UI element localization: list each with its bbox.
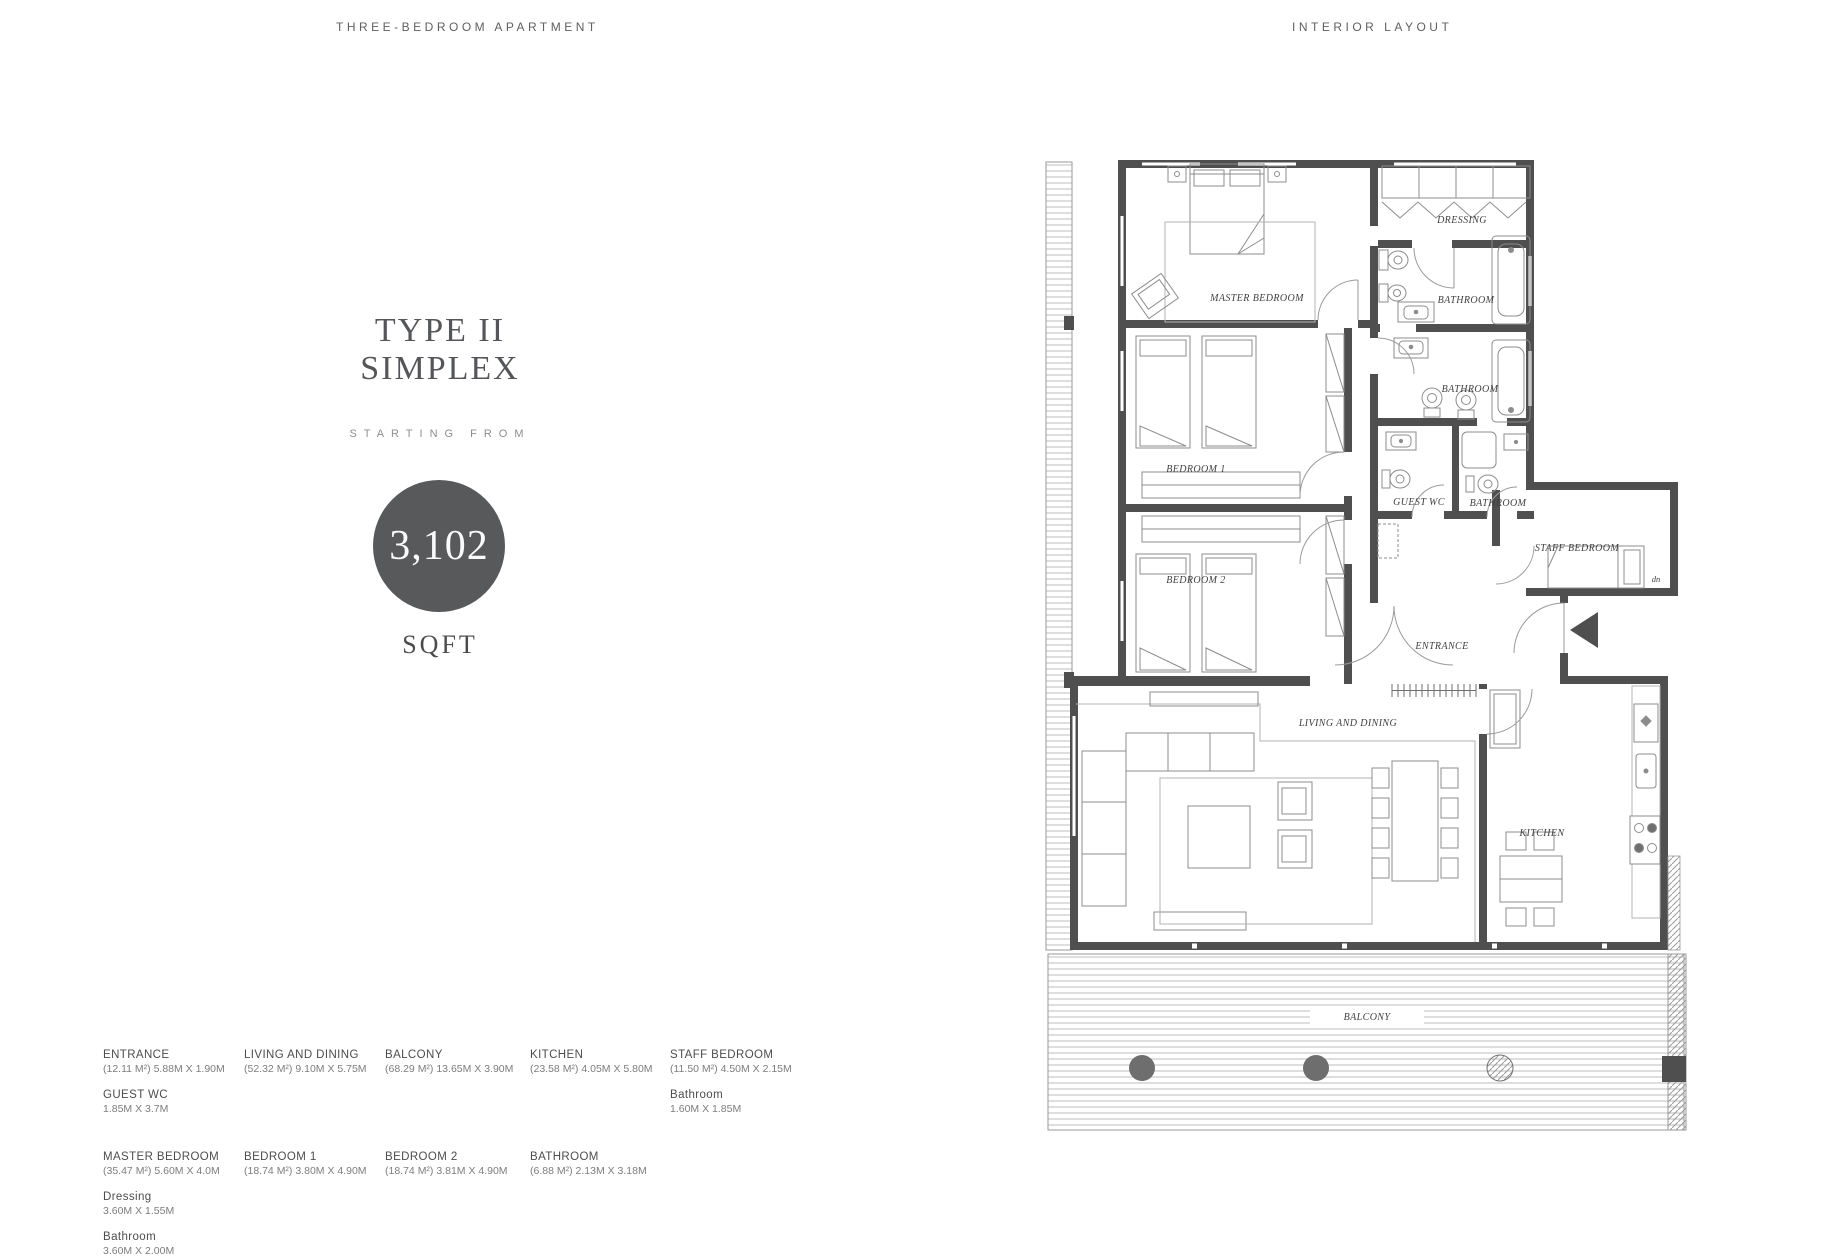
starting-from-label: STARTING FROM xyxy=(240,428,640,440)
unit-type-line2: SIMPLEX xyxy=(240,350,640,388)
planter xyxy=(1487,1055,1513,1081)
master-armchair xyxy=(1132,273,1179,318)
area-unit-label: SQFT xyxy=(240,630,640,660)
page-header-right: INTERIOR LAYOUT xyxy=(1292,20,1452,34)
corridor-cabinet xyxy=(1378,524,1398,558)
dim-entrance: ENTRANCE (12.11 M²) 5.88M X 1.90M GUEST … xyxy=(103,1048,253,1116)
guest-wc-fixtures xyxy=(1382,432,1416,488)
planter xyxy=(1303,1055,1329,1081)
bedroom2-furniture xyxy=(1136,516,1344,672)
unit-type-line1: TYPE II xyxy=(240,312,640,350)
living-armchairs xyxy=(1278,782,1312,868)
dim-size: (18.74 M²) 3.81M X 4.90M xyxy=(385,1164,535,1178)
dim-bathroom: BATHROOM (6.88 M²) 2.13M X 3.18M xyxy=(530,1150,680,1178)
area-value: 3,102 xyxy=(389,522,489,570)
dim-sub-size: 1.85M X 3.7M xyxy=(103,1102,253,1116)
dim-bedroom-2: BEDROOM 2 (18.74 M²) 3.81M X 4.90M xyxy=(385,1150,535,1178)
entry-arrow-icon xyxy=(1570,612,1598,648)
side-louver-strip xyxy=(1046,162,1074,950)
dim-kitchen: KITCHEN (23.58 M²) 4.05M X 5.80M xyxy=(530,1048,680,1076)
label-bedroom-1: BEDROOM 1 xyxy=(1166,464,1225,475)
planter xyxy=(1129,1055,1155,1081)
dim-size: (12.11 M²) 5.88M X 1.90M xyxy=(103,1062,253,1076)
label-balcony: BALCONY xyxy=(1344,1012,1392,1023)
dim-name: BATHROOM xyxy=(530,1150,680,1164)
living-sofa xyxy=(1082,692,1258,930)
master-bed xyxy=(1168,164,1286,254)
label-stairs-dn: dn xyxy=(1652,574,1661,584)
bathroom3-fixtures xyxy=(1462,432,1528,493)
dim-size: (6.88 M²) 2.13M X 3.18M xyxy=(530,1164,680,1178)
label-bedroom-2: BEDROOM 2 xyxy=(1166,575,1225,586)
dim-name: BEDROOM 1 xyxy=(244,1150,394,1164)
label-bathroom-3: BATHROOM xyxy=(1470,498,1527,509)
dim-size: (23.58 M²) 4.05M X 5.80M xyxy=(530,1062,680,1076)
entrance-cabinet xyxy=(1392,684,1476,697)
label-master-bedroom: MASTER BEDROOM xyxy=(1209,293,1304,304)
master-rug xyxy=(1165,222,1315,322)
living-rug xyxy=(1160,778,1372,924)
dim-name: MASTER BEDROOM xyxy=(103,1150,253,1164)
dim-bedroom-1: BEDROOM 1 (18.74 M²) 3.80M X 4.90M xyxy=(244,1150,394,1178)
area-badge: 3,102 xyxy=(373,480,505,612)
label-bathroom-2: BATHROOM xyxy=(1442,384,1499,395)
dim-sub-name: GUEST WC xyxy=(103,1088,253,1102)
dim-name: KITCHEN xyxy=(530,1048,680,1062)
label-kitchen: KITCHEN xyxy=(1518,828,1565,839)
dim-sub-size: 1.60M X 1.85M xyxy=(670,1102,820,1116)
dim-balcony: BALCONY (68.29 M²) 13.65M X 3.90M xyxy=(385,1048,535,1076)
label-entrance: ENTRANCE xyxy=(1414,641,1468,652)
dining-table xyxy=(1372,761,1458,881)
dim-staff-bedroom: STAFF BEDROOM (11.50 M²) 4.50M X 2.15M B… xyxy=(670,1048,820,1116)
bathroom2-fixtures xyxy=(1394,338,1530,422)
dim-size: (52.32 M²) 9.10M X 5.75M xyxy=(244,1062,394,1076)
dim-size: (35.47 M²) 5.60M X 4.0M xyxy=(103,1164,253,1178)
dim-size: (11.50 M²) 4.50M X 2.15M xyxy=(670,1062,820,1076)
label-staff-bedroom: STAFF BEDROOM xyxy=(1535,543,1619,554)
label-living-dining: LIVING AND DINING xyxy=(1298,718,1397,729)
dim-size: (68.29 M²) 13.65M X 3.90M xyxy=(385,1062,535,1076)
dim-sub-name: Dressing xyxy=(103,1190,253,1204)
label-guest-wc: GUEST WC xyxy=(1393,497,1445,508)
label-dressing: DRESSING xyxy=(1436,215,1487,226)
dim-name: BALCONY xyxy=(385,1048,535,1062)
dim-size: (18.74 M²) 3.80M X 4.90M xyxy=(244,1164,394,1178)
kitchen-fixtures xyxy=(1490,686,1660,926)
dim-sub-size: 3.60M X 1.55M xyxy=(103,1204,253,1218)
walls xyxy=(1070,160,1678,950)
dim-name: STAFF BEDROOM xyxy=(670,1048,820,1062)
dim-living-dining: LIVING AND DINING (52.32 M²) 9.10M X 5.7… xyxy=(244,1048,394,1076)
label-master-bathroom: BATHROOM xyxy=(1438,295,1495,306)
dim-name: LIVING AND DINING xyxy=(244,1048,394,1062)
dim-sub-size: 3.60M X 2.00M xyxy=(103,1244,253,1258)
balcony-deck xyxy=(1048,856,1686,1130)
dim-sub-name: Bathroom xyxy=(670,1088,820,1102)
unit-type-title: TYPE II SIMPLEX xyxy=(240,312,640,388)
floor-plan: MASTER BEDROOM DRESSING BATHROOM BATHROO… xyxy=(1042,156,1702,1153)
dressing-wardrobe xyxy=(1382,166,1530,218)
coffee-table xyxy=(1188,806,1250,868)
dim-name: ENTRANCE xyxy=(103,1048,253,1062)
door-arcs xyxy=(1300,248,1564,734)
dim-name: BEDROOM 2 xyxy=(385,1150,535,1164)
living-floor-outline xyxy=(1076,704,1475,942)
page-header-left: THREE-BEDROOM APARTMENT xyxy=(336,20,599,34)
